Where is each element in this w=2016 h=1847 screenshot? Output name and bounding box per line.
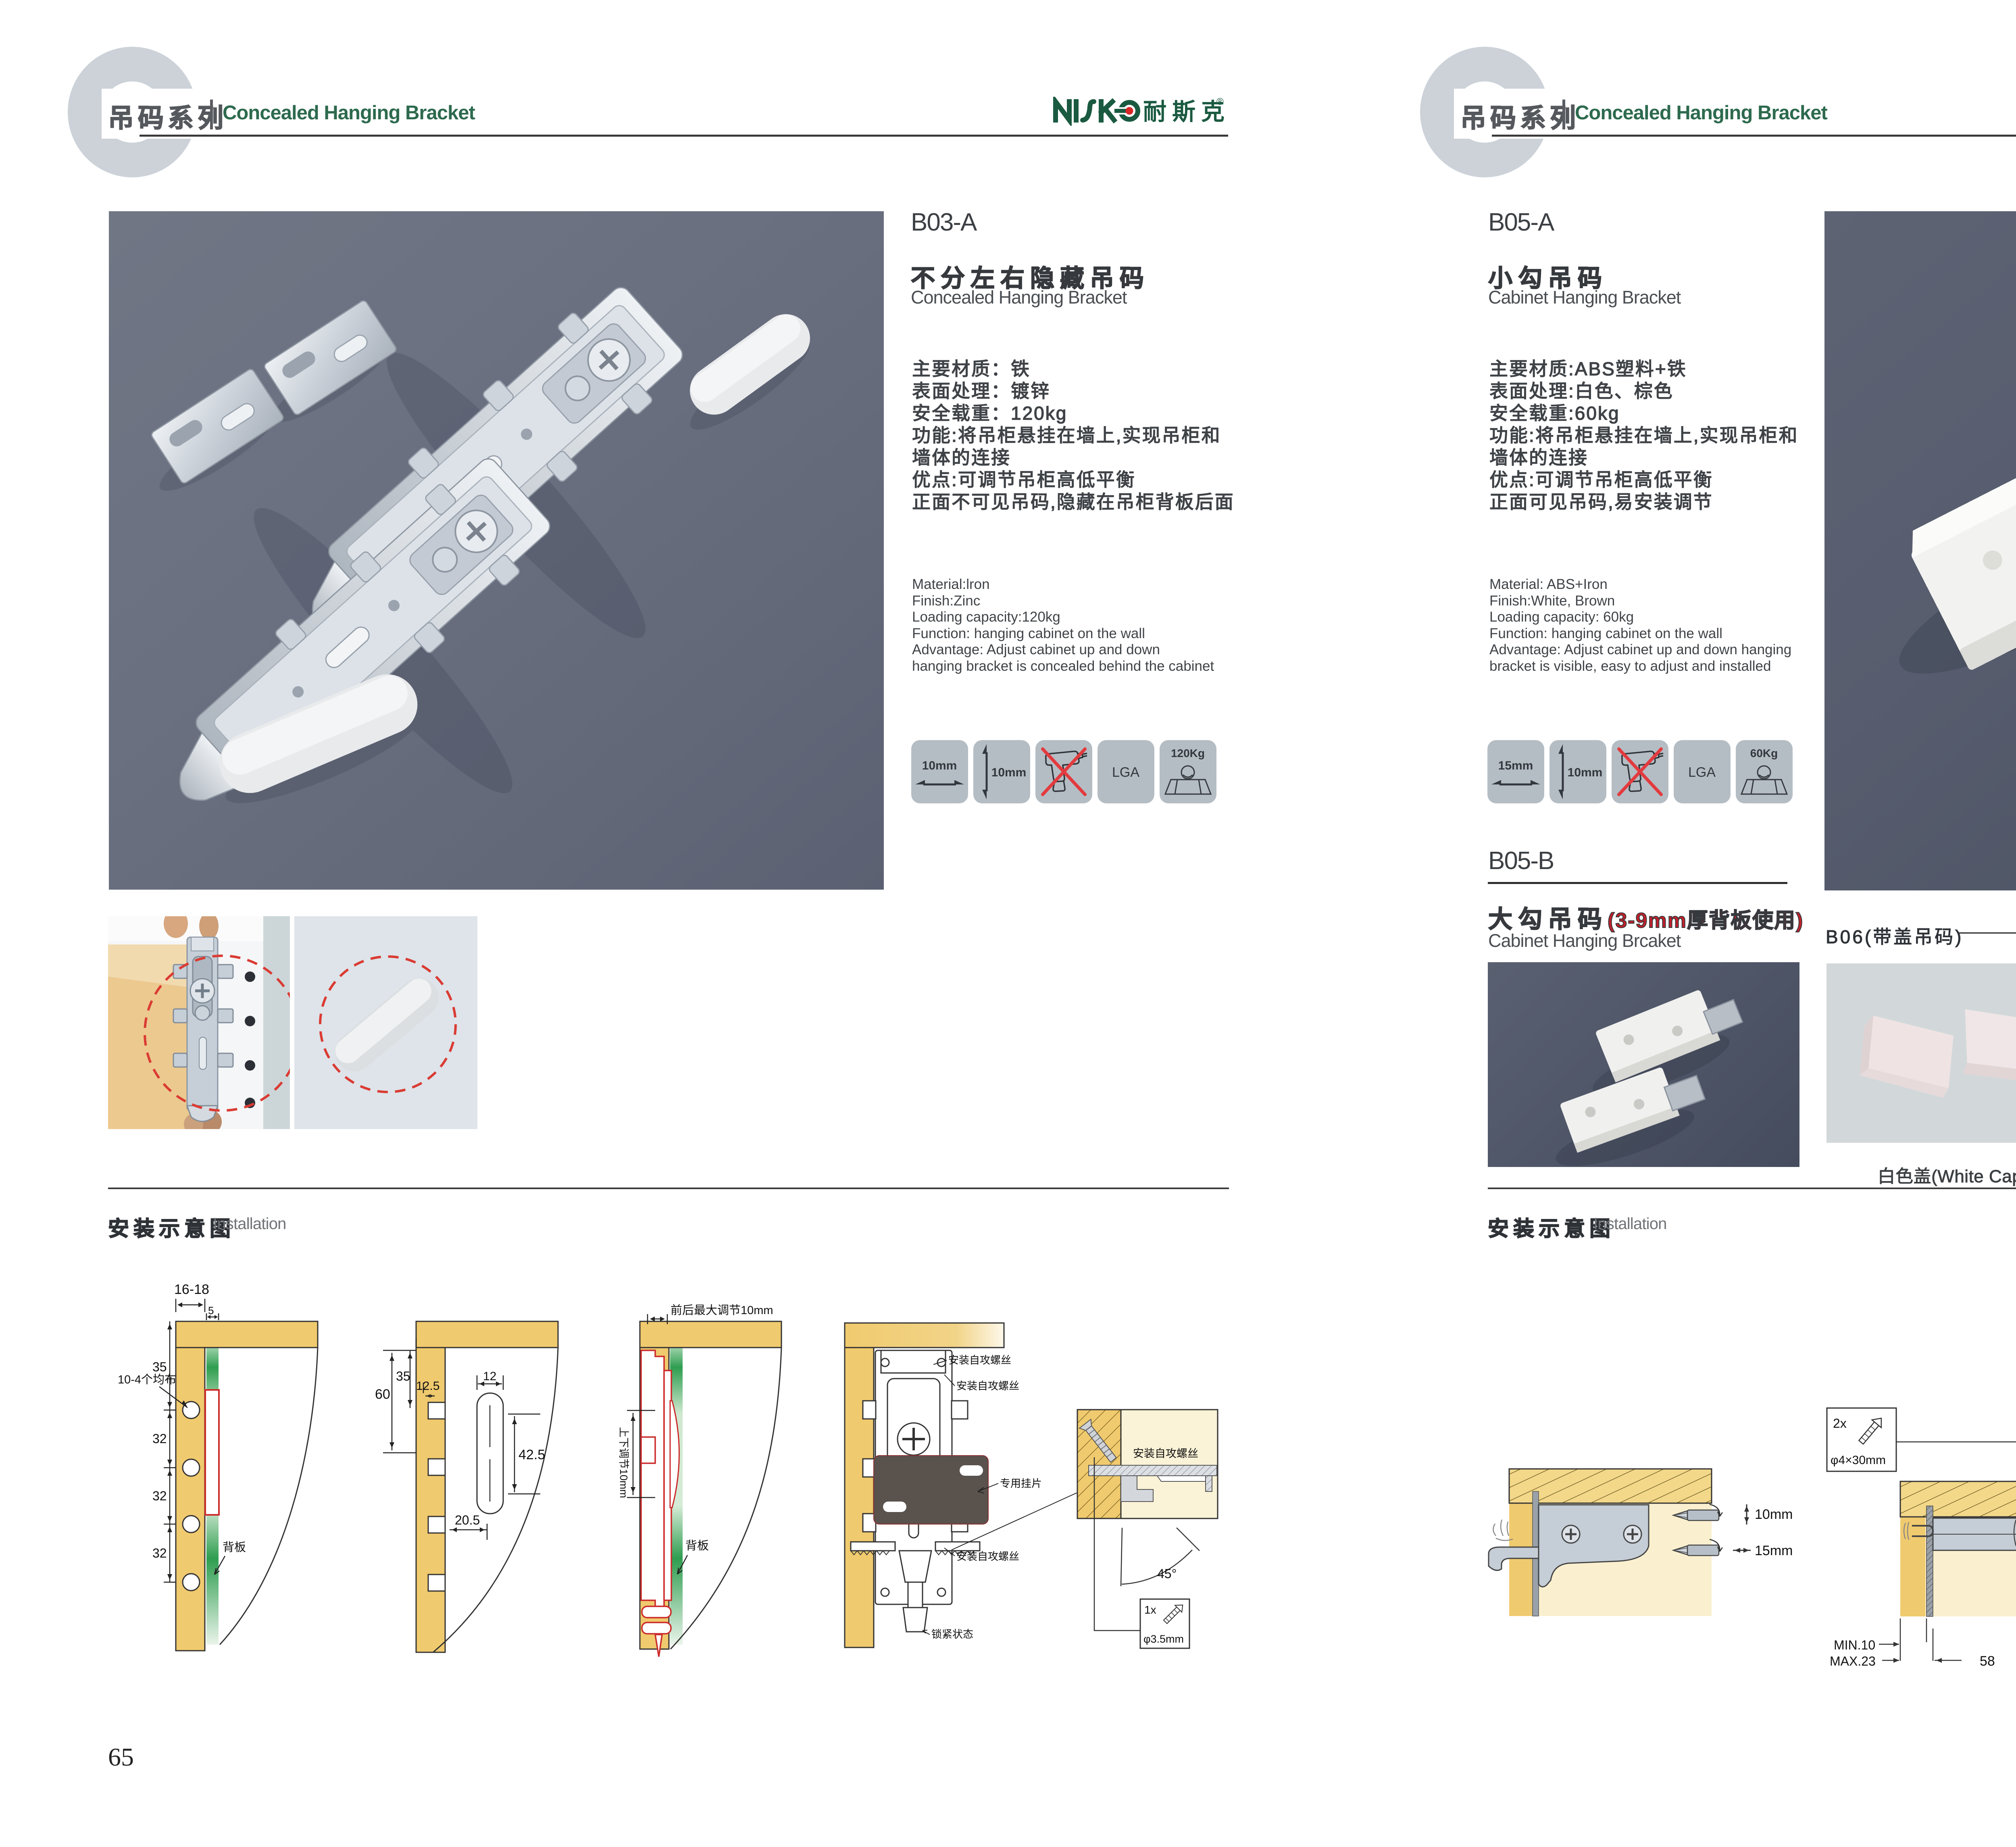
svg-text:前后最大调节10mm: 前后最大调节10mm xyxy=(671,1304,773,1317)
svg-text:15mm: 15mm xyxy=(1755,1543,1793,1558)
svg-text:LGA: LGA xyxy=(1112,765,1139,780)
svg-text:10mm: 10mm xyxy=(922,759,957,772)
svg-text:42.5: 42.5 xyxy=(519,1447,545,1462)
svg-text:φ4×30mm: φ4×30mm xyxy=(1831,1454,1886,1467)
svg-text:专用挂片: 专用挂片 xyxy=(1000,1477,1042,1489)
svg-text:安装自攻螺丝: 安装自攻螺丝 xyxy=(956,1550,1019,1562)
svg-text:35: 35 xyxy=(152,1360,167,1374)
svg-text:20.5: 20.5 xyxy=(455,1513,480,1527)
svg-text:10-4个均布: 10-4个均布 xyxy=(118,1373,176,1386)
svg-text:10mm: 10mm xyxy=(1755,1507,1793,1522)
svg-text:锁紧状态: 锁紧状态 xyxy=(931,1628,973,1640)
svg-text:58: 58 xyxy=(1980,1654,1995,1669)
svg-text:MIN.10: MIN.10 xyxy=(1834,1638,1875,1652)
svg-text:60: 60 xyxy=(375,1387,390,1402)
svg-text:φ3.5mm: φ3.5mm xyxy=(1143,1633,1184,1645)
svg-text:安装自攻螺丝: 安装自攻螺丝 xyxy=(948,1354,1011,1366)
svg-text:2x: 2x xyxy=(1833,1416,1847,1431)
svg-text:安装自攻螺丝: 安装自攻螺丝 xyxy=(956,1380,1019,1392)
svg-text:10mm: 10mm xyxy=(991,766,1027,779)
svg-text:32: 32 xyxy=(152,1489,167,1503)
svg-text:背板: 背板 xyxy=(223,1541,246,1554)
svg-text:120Kg: 120Kg xyxy=(1171,747,1205,759)
svg-text:60Kg: 60Kg xyxy=(1750,747,1778,759)
svg-text:45°: 45° xyxy=(1157,1566,1177,1581)
svg-text:12.5: 12.5 xyxy=(416,1379,439,1393)
svg-text:MAX.23: MAX.23 xyxy=(1830,1654,1876,1668)
svg-text:15mm: 15mm xyxy=(1498,759,1533,772)
svg-text:35: 35 xyxy=(396,1369,410,1383)
svg-text:耐斯克: 耐斯克 xyxy=(1143,99,1225,125)
svg-text:16-18: 16-18 xyxy=(174,1282,209,1297)
svg-text:安装自攻螺丝: 安装自攻螺丝 xyxy=(1133,1448,1198,1460)
svg-text:32: 32 xyxy=(152,1546,167,1560)
svg-text:上下调节10mm: 上下调节10mm xyxy=(618,1427,630,1498)
svg-text:12: 12 xyxy=(483,1370,496,1383)
svg-text:32: 32 xyxy=(152,1431,167,1446)
svg-text:LGA: LGA xyxy=(1688,765,1716,780)
svg-text:®: ® xyxy=(1216,97,1224,107)
svg-text:1x: 1x xyxy=(1144,1604,1156,1616)
svg-text:背板: 背板 xyxy=(685,1539,709,1552)
svg-text:10mm: 10mm xyxy=(1568,766,1603,779)
svg-text:5: 5 xyxy=(208,1304,214,1317)
